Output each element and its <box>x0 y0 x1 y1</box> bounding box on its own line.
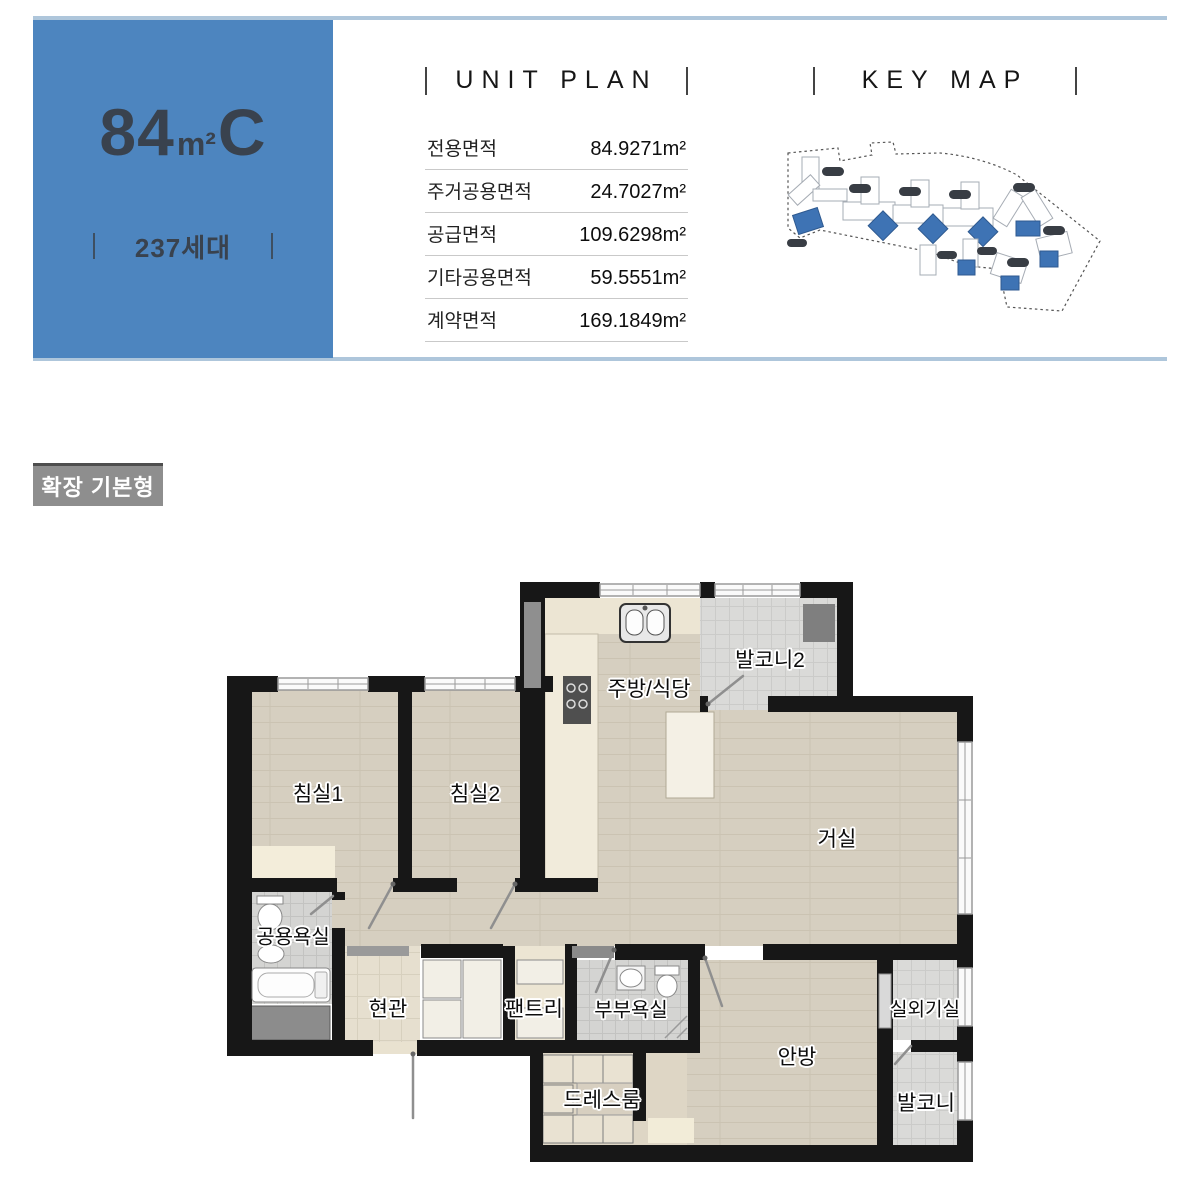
title-bar-left <box>813 67 815 95</box>
floor-plan: 침실1 침실2 주방/식당 발코니2 거실 공용욕실 현관 팬트리 부부욕실 드… <box>225 578 985 1163</box>
key-map-title-row: KEY MAP <box>785 66 1105 95</box>
room-label-bedroom1: 침실1 <box>293 778 343 808</box>
room-label-living: 거실 <box>818 823 857 853</box>
unit-code-unit: m² <box>177 126 216 163</box>
households-count: 237세대 <box>135 228 231 265</box>
room-label-balcony: 발코니 <box>897 1087 955 1117</box>
table-row: 계약면적 169.1849m² <box>425 299 688 342</box>
area-label: 주거공용면적 <box>427 177 532 204</box>
table-row: 기타공용면적 59.5551m² <box>425 256 688 299</box>
area-table: 전용면적 84.9271m² 주거공용면적 24.7027m² 공급면적 109… <box>425 127 688 342</box>
key-map-section: KEY MAP <box>785 66 1105 329</box>
title-bar-right <box>1075 67 1077 95</box>
room-label-dressroom: 드레스룸 <box>563 1084 640 1114</box>
unit-code: 84 m² C <box>99 94 266 170</box>
room-label-pantry: 팬트리 <box>505 993 563 1023</box>
area-value: 109.6298m² <box>579 224 686 247</box>
plan-type-badge: 확장 기본형 <box>33 463 163 506</box>
unit-plan-page: 84 m² C 237세대 UNIT PLAN 전용면적 84.9271m² 주… <box>0 0 1200 1179</box>
room-label-master-bath: 부부욕실 <box>594 994 668 1023</box>
key-map-title: KEY MAP <box>862 66 1029 95</box>
room-label-entrance: 현관 <box>369 993 408 1023</box>
area-value: 84.9271m² <box>590 138 686 161</box>
area-label: 전용면적 <box>427 134 497 161</box>
unit-plan-section: UNIT PLAN 전용면적 84.9271m² 주거공용면적 24.7027m… <box>425 66 688 342</box>
key-map-image <box>785 139 1105 329</box>
area-value: 24.7027m² <box>590 181 686 204</box>
divider-bar <box>271 233 273 259</box>
title-bar-right <box>686 67 688 95</box>
room-label-common-bath: 공용욕실 <box>256 921 330 950</box>
area-label: 기타공용면적 <box>427 263 532 290</box>
room-label-bedroom2: 침실2 <box>450 778 500 808</box>
area-label: 계약면적 <box>427 306 497 333</box>
room-label-balcony2: 발코니2 <box>735 644 805 674</box>
unit-plan-title: UNIT PLAN <box>455 66 657 95</box>
unit-type-panel: 84 m² C 237세대 <box>33 20 333 358</box>
room-label-master-bedroom: 안방 <box>778 1041 817 1071</box>
plan-type-badge-label: 확장 기본형 <box>41 470 154 502</box>
title-bar-left <box>425 67 427 95</box>
area-label: 공급면적 <box>427 220 497 247</box>
table-row: 주거공용면적 24.7027m² <box>425 170 688 213</box>
unit-plan-title-row: UNIT PLAN <box>425 66 688 95</box>
unit-code-number: 84 <box>99 94 174 170</box>
area-value: 169.1849m² <box>579 310 686 333</box>
unit-code-suffix: C <box>218 94 267 170</box>
floor-plan-image <box>225 578 985 1163</box>
table-row: 공급면적 109.6298m² <box>425 213 688 256</box>
room-label-kitchen: 주방/식당 <box>607 673 690 703</box>
area-value: 59.5551m² <box>590 267 686 290</box>
households-row: 237세대 <box>93 228 273 265</box>
table-row: 전용면적 84.9271m² <box>425 127 688 170</box>
divider-bar <box>93 233 95 259</box>
room-label-ac-room: 실외기실 <box>890 995 960 1022</box>
